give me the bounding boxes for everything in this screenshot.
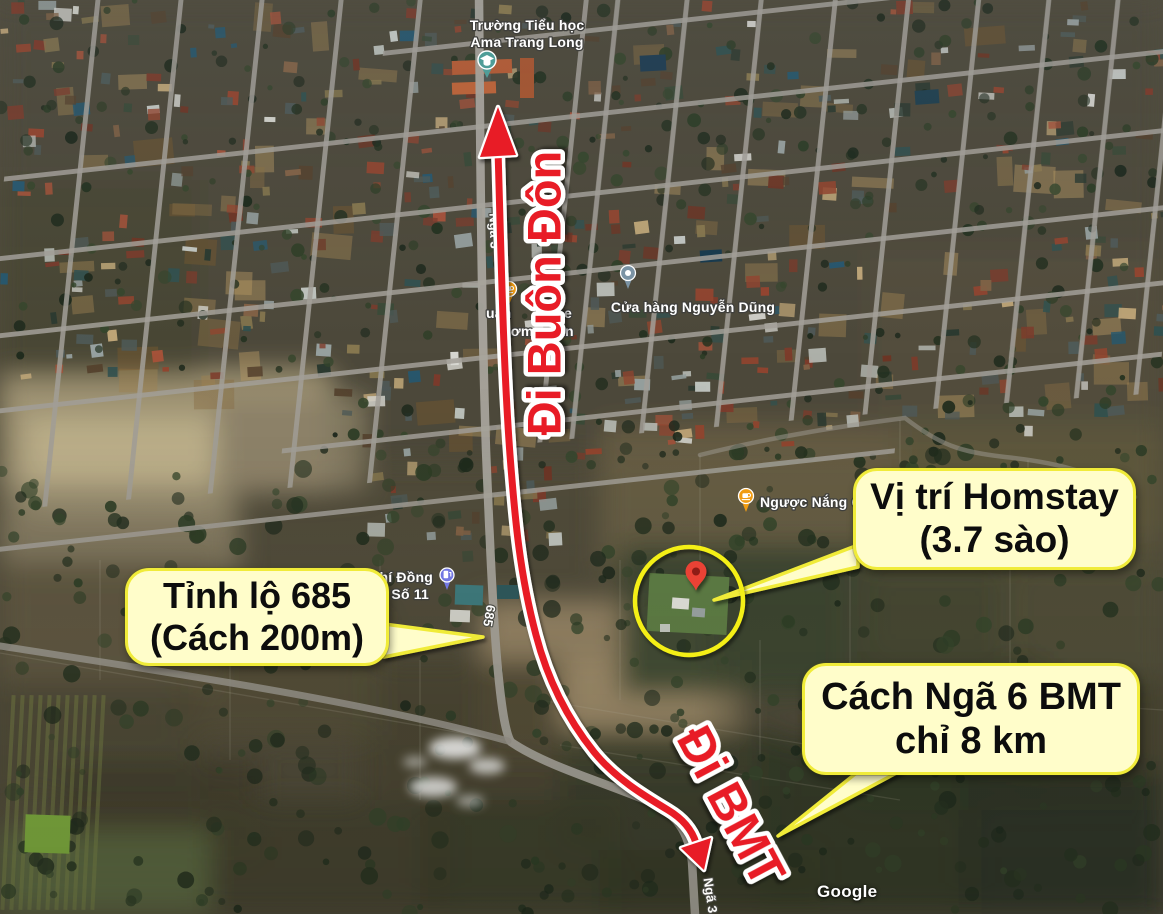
callout-homestay-line1: Vị trí Homstay xyxy=(870,476,1119,519)
property-highlight-circle xyxy=(635,547,743,655)
callout-road685-line2: (Cách 200m) xyxy=(150,617,364,659)
annotation-layer: Đi Buôn Đôn Đi BMT xyxy=(0,0,1163,914)
callout-road685: Tỉnh lộ 685 (Cách 200m) xyxy=(125,568,389,666)
callout-bmt-line1: Cách Ngã 6 BMT xyxy=(821,675,1121,719)
callout-bmt: Cách Ngã 6 BMT chỉ 8 km xyxy=(802,663,1140,775)
callout-homestay: Vị trí Homstay (3.7 sào) xyxy=(853,468,1136,570)
callout-road685-line1: Tỉnh lộ 685 xyxy=(163,575,351,617)
callout-bmt-line2: chỉ 8 km xyxy=(895,719,1047,763)
callout-tail-road685 xyxy=(384,624,483,657)
arrowhead-north xyxy=(480,107,516,157)
callout-homestay-line2: (3.7 sào) xyxy=(919,519,1069,562)
arrowhead-south xyxy=(681,838,711,870)
google-watermark: Google xyxy=(817,882,877,902)
callout-tail-bmt xyxy=(778,770,902,836)
property-marker-pin[interactable] xyxy=(686,561,707,591)
direction-label-bmt: Đi BMT xyxy=(666,717,796,895)
map-canvas[interactable]: Trường Tiểu học Ama Trang Long uán ee hơ… xyxy=(0,0,1163,914)
direction-label-buon-don: Đi Buôn Đôn xyxy=(518,151,571,436)
